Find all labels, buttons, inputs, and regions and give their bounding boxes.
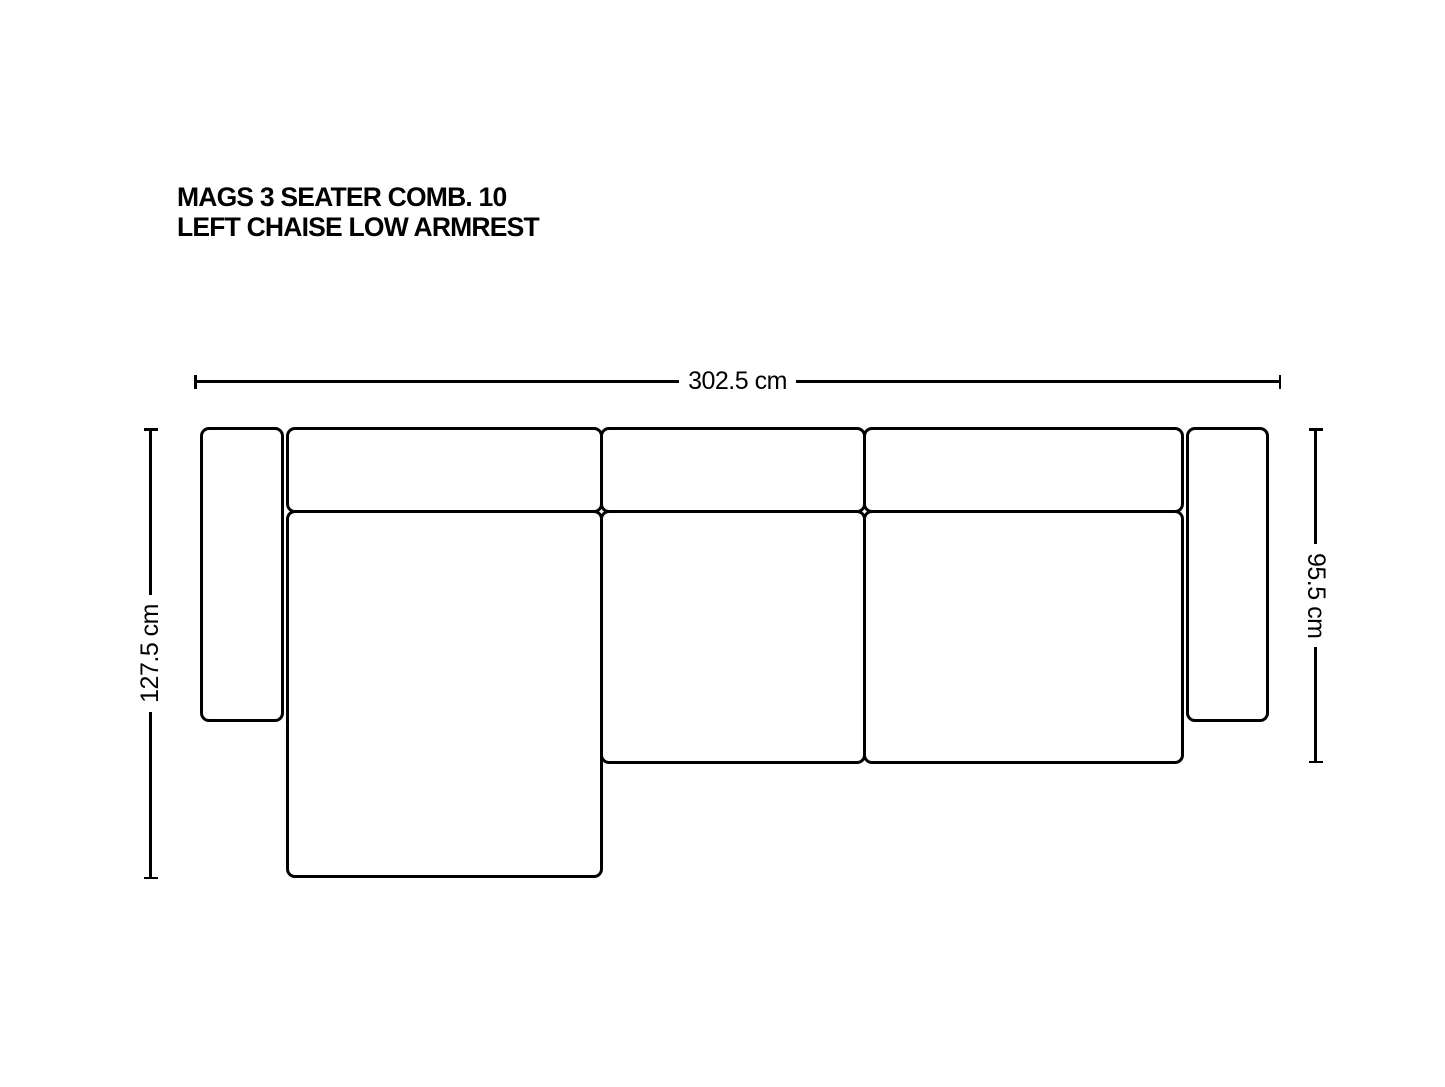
dimension-tick-right <box>1279 375 1282 389</box>
dimension-label-chaise-depth: 127.5 cm <box>136 595 165 712</box>
dimension-line-segment <box>796 380 1279 383</box>
dimension-line-segment <box>149 712 152 877</box>
dimension-label-overall-width: 302.5 cm <box>679 367 796 396</box>
page-title-line1: MAGS 3 SEATER COMB. 10 <box>177 182 539 212</box>
dimension-line-segment <box>1314 431 1317 544</box>
page-title-line2: LEFT CHAISE LOW ARMREST <box>177 212 539 242</box>
module-middle-seat <box>600 510 866 764</box>
module-left-armrest <box>200 427 284 722</box>
dimension-line-segment <box>1314 647 1317 760</box>
module-right-seat <box>863 510 1184 764</box>
dimension-tick-bottom <box>1309 761 1323 764</box>
module-right-backrest <box>863 427 1184 513</box>
dimension-tick-bottom <box>144 877 158 880</box>
dimension-label-sofa-depth: 95.5 cm <box>1301 544 1330 647</box>
page-title: MAGS 3 SEATER COMB. 10 LEFT CHAISE LOW A… <box>177 182 539 242</box>
module-right-armrest <box>1186 427 1269 722</box>
module-chaise-seat <box>286 510 603 878</box>
module-chaise-backrest <box>286 427 603 513</box>
dimension-line-segment <box>197 380 680 383</box>
dimension-sofa-depth: 95.5 cm <box>1308 428 1323 763</box>
module-middle-backrest <box>600 427 866 513</box>
dimension-overall-width: 302.5 cm <box>194 374 1281 389</box>
dimension-chaise-depth: 127.5 cm <box>143 428 158 879</box>
dimension-line-segment <box>149 431 152 596</box>
